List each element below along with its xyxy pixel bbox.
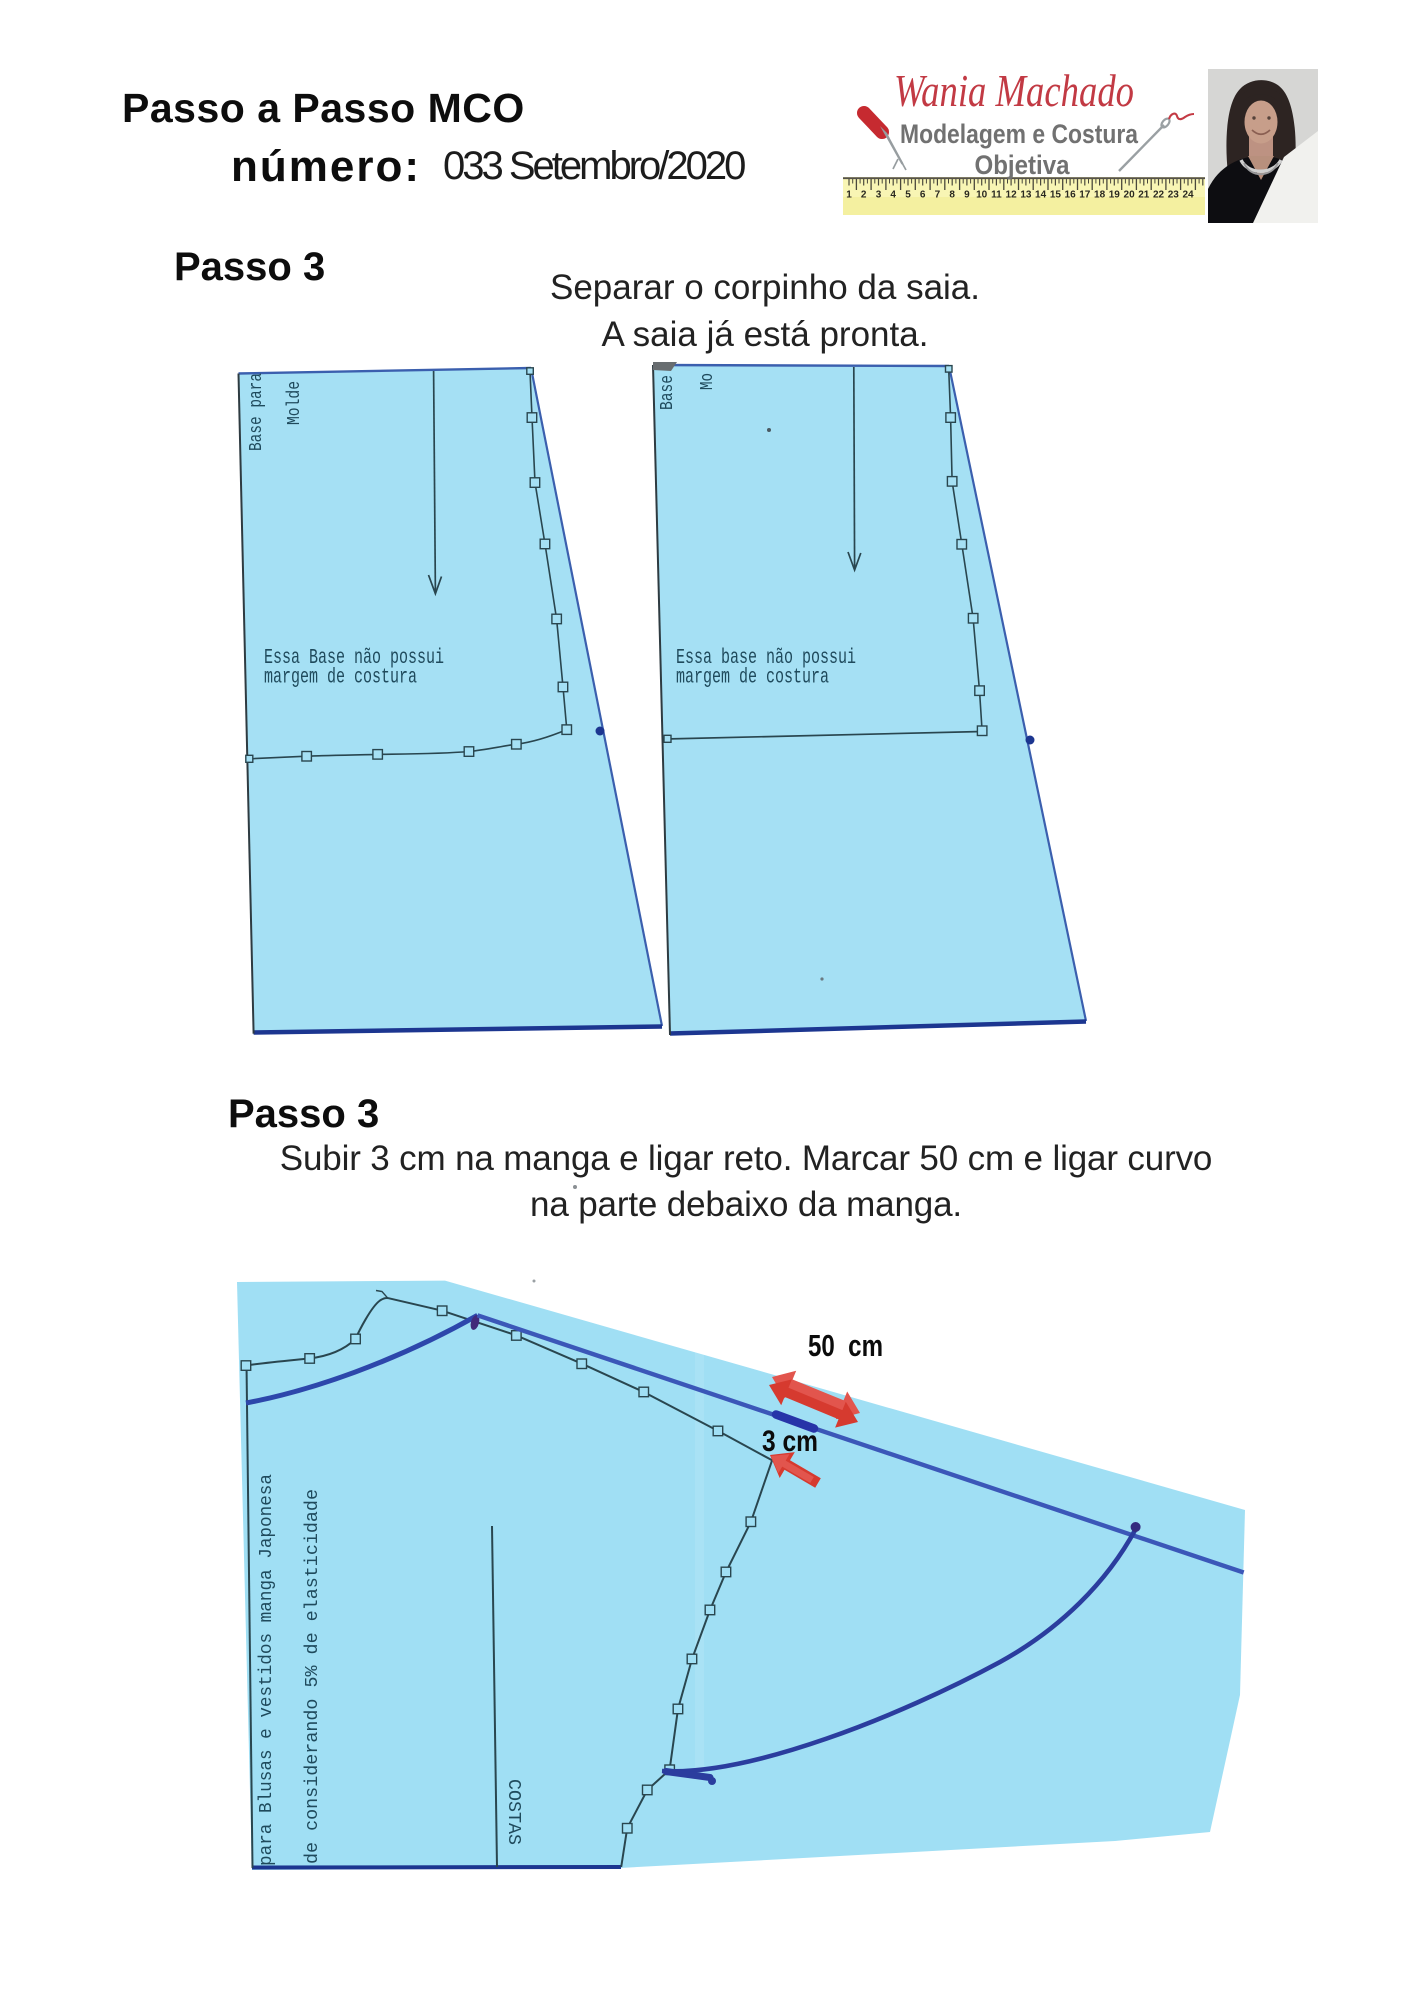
svg-text:COSTAS: COSTAS xyxy=(503,1779,523,1845)
svg-text:2: 2 xyxy=(861,190,867,201)
svg-text:6: 6 xyxy=(920,190,926,201)
svg-text:14: 14 xyxy=(1035,190,1047,201)
svg-text:13: 13 xyxy=(1020,190,1032,201)
svg-text:11: 11 xyxy=(991,190,1002,201)
svg-text:50 cm: 50 cm xyxy=(808,1328,883,1363)
svg-text:Wania Machado: Wania Machado xyxy=(894,65,1134,116)
svg-text:18: 18 xyxy=(1094,190,1106,201)
svg-text:19: 19 xyxy=(1109,190,1121,201)
svg-text:1: 1 xyxy=(846,190,852,201)
svg-text:4: 4 xyxy=(890,190,896,201)
svg-text:Objetiva: Objetiva xyxy=(975,150,1071,180)
svg-text:Modelagem e Costura: Modelagem e Costura xyxy=(900,119,1139,149)
svg-text:Mo: Mo xyxy=(698,373,718,390)
svg-text:23: 23 xyxy=(1168,190,1180,201)
svg-text:10: 10 xyxy=(976,190,988,201)
svg-text:17: 17 xyxy=(1079,190,1091,201)
svg-text:16: 16 xyxy=(1065,190,1077,201)
svg-text:8: 8 xyxy=(949,190,955,201)
svg-text:Base para: Base para xyxy=(247,373,267,451)
svg-text:margem de costura: margem de costura xyxy=(676,667,829,690)
svg-text:9: 9 xyxy=(964,190,970,201)
svg-text:3 cm: 3 cm xyxy=(762,1425,818,1458)
svg-text:3: 3 xyxy=(876,190,882,201)
svg-text:margem de costura: margem de costura xyxy=(264,667,417,690)
svg-text:7: 7 xyxy=(935,190,941,201)
svg-text:Molde: Molde xyxy=(285,381,305,425)
svg-text:24: 24 xyxy=(1182,190,1194,201)
svg-text:para Blusas e vestidos manga J: para Blusas e vestidos manga Japonesa xyxy=(257,1474,277,1866)
svg-text:5: 5 xyxy=(905,190,911,201)
svg-text:12: 12 xyxy=(1006,190,1018,201)
svg-text:21: 21 xyxy=(1138,190,1150,201)
svg-text:de considerando 5% de elastici: de considerando 5% de elasticidade xyxy=(303,1489,323,1864)
svg-text:Base: Base xyxy=(658,375,678,410)
svg-text:15: 15 xyxy=(1050,190,1062,201)
svg-text:20: 20 xyxy=(1124,190,1136,201)
svg-text:22: 22 xyxy=(1153,190,1165,201)
